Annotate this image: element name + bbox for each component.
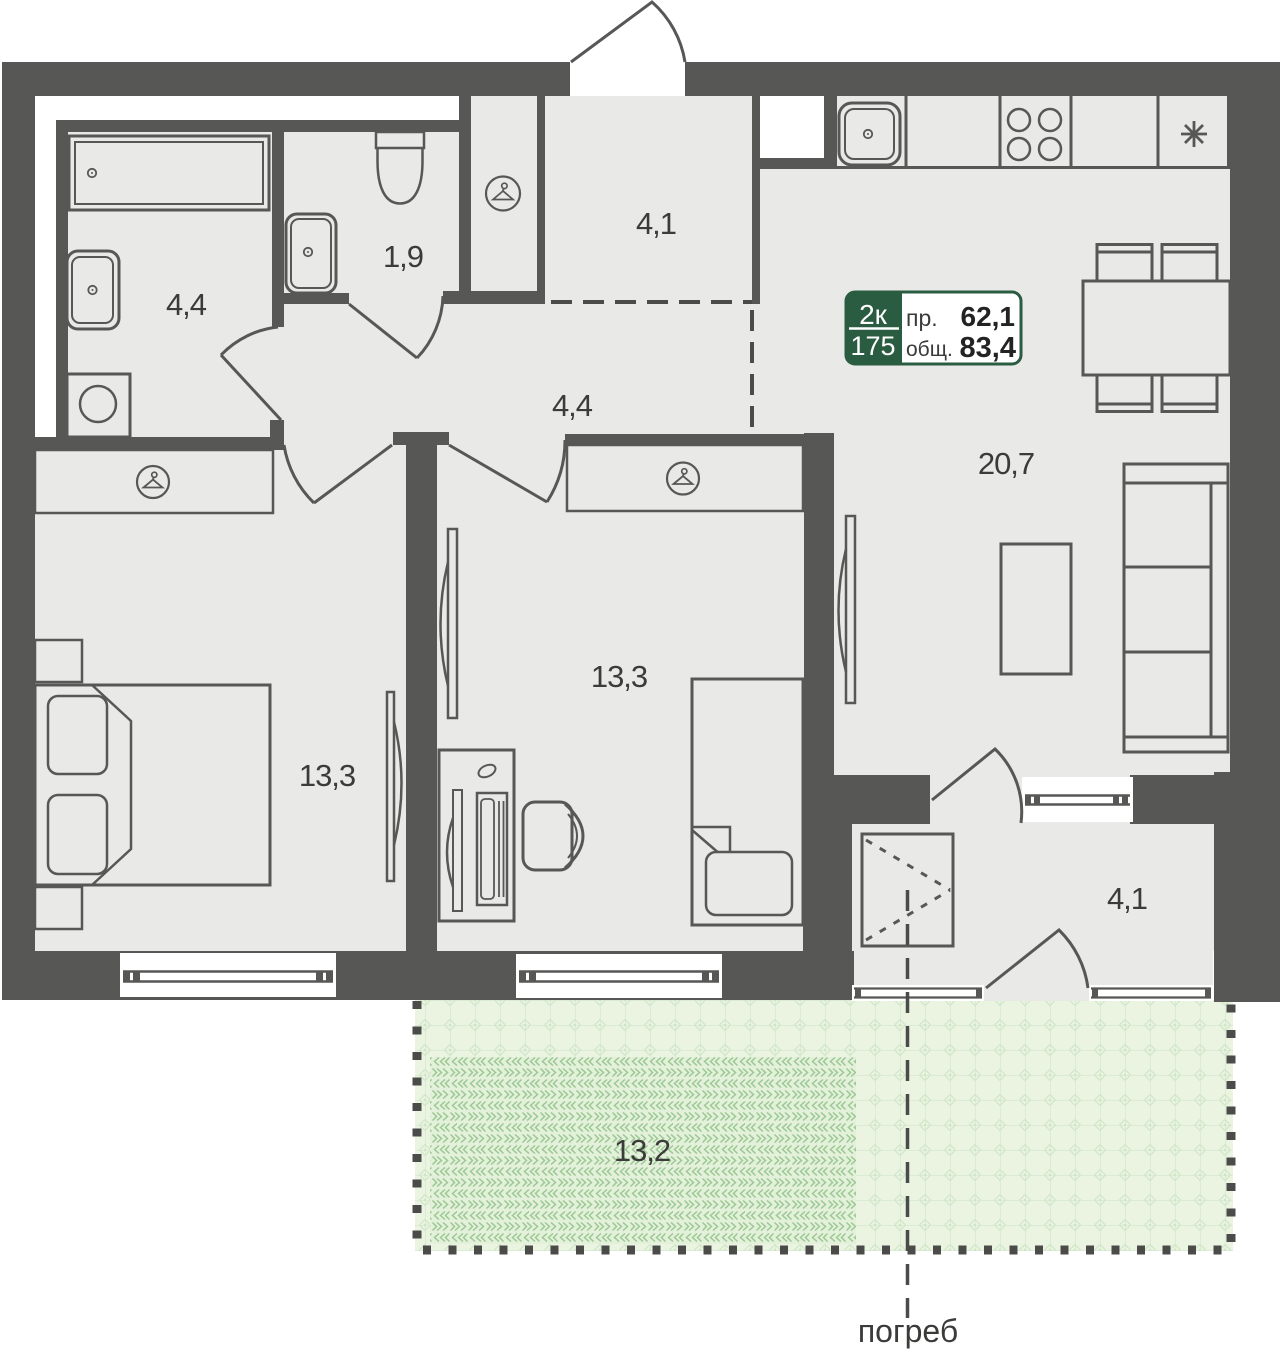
svg-text:4,4: 4,4 — [166, 287, 207, 322]
svg-text:4,1: 4,1 — [1107, 881, 1147, 916]
svg-text:пр.: пр. — [906, 305, 938, 331]
svg-text:4,4: 4,4 — [552, 388, 593, 423]
svg-text:13,3: 13,3 — [591, 659, 647, 694]
svg-text:62,1: 62,1 — [961, 301, 1016, 332]
svg-text:погреб: погреб — [858, 1313, 958, 1349]
svg-text:общ.: общ. — [906, 338, 953, 361]
svg-text:20,7: 20,7 — [978, 446, 1034, 481]
svg-text:2к: 2к — [859, 299, 888, 330]
svg-text:13,2: 13,2 — [614, 1133, 670, 1168]
svg-text:1,9: 1,9 — [383, 239, 423, 274]
svg-text:4,1: 4,1 — [636, 206, 676, 241]
svg-text:83,4: 83,4 — [960, 332, 1016, 364]
svg-text:175: 175 — [850, 331, 895, 361]
svg-text:13,3: 13,3 — [299, 758, 355, 793]
